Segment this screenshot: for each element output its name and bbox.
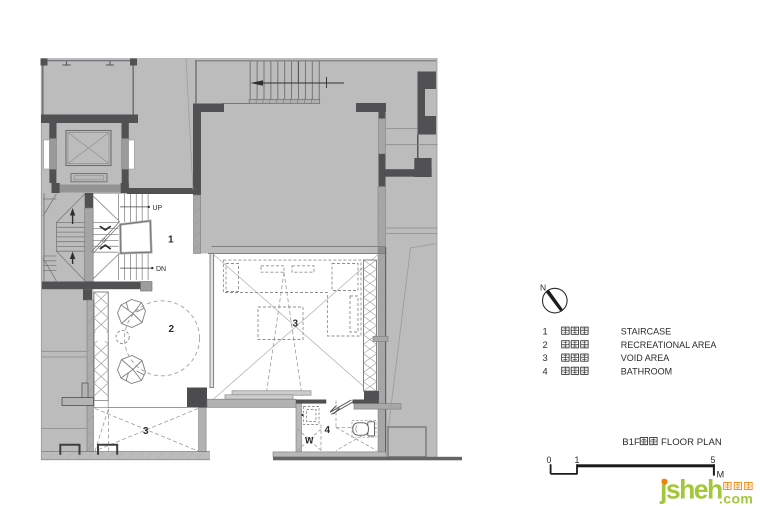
svg-text:3: 3	[293, 319, 299, 330]
svg-text:4: 4	[325, 425, 331, 436]
svg-text:RECREATIONAL AREA: RECREATIONAL AREA	[621, 340, 717, 350]
svg-text:2: 2	[169, 324, 175, 335]
svg-text:2: 2	[543, 340, 548, 350]
svg-text:jsheh: jsheh	[659, 475, 722, 505]
svg-text:.com: .com	[719, 491, 753, 506]
svg-text:BATHROOM: BATHROOM	[621, 366, 672, 376]
svg-text:0: 0	[547, 455, 552, 465]
svg-text:UP: UP	[153, 205, 163, 212]
svg-text:STAIRCASE: STAIRCASE	[621, 326, 671, 336]
svg-text:1: 1	[575, 455, 580, 465]
svg-text:1: 1	[168, 235, 174, 246]
svg-text:4: 4	[543, 366, 548, 376]
svg-text:N: N	[540, 283, 546, 293]
svg-text:VOID AREA: VOID AREA	[621, 353, 670, 363]
svg-text:FLOOR PLAN: FLOOR PLAN	[661, 437, 722, 448]
svg-text:DN: DN	[156, 266, 166, 273]
svg-text:3: 3	[543, 353, 548, 363]
svg-text:3: 3	[143, 426, 149, 437]
svg-text:W: W	[305, 436, 314, 446]
svg-text:5: 5	[711, 455, 716, 465]
svg-text:1: 1	[543, 326, 548, 336]
svg-text:B1F: B1F	[622, 437, 640, 448]
